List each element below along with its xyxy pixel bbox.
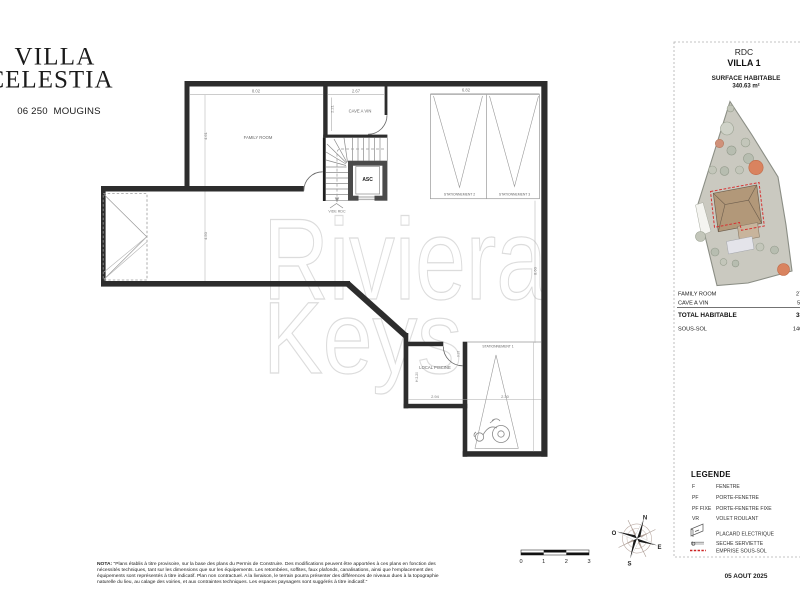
svg-text:H 2.20: H 2.20: [415, 372, 419, 382]
svg-text:FENETRE: FENETRE: [716, 484, 740, 490]
svg-text:RDC: RDC: [735, 47, 753, 57]
svg-text:S: S: [627, 562, 631, 568]
svg-text:VOLET ROULANT: VOLET ROULANT: [716, 516, 758, 522]
svg-text:06 250 MOUGINS: 06 250 MOUGINS: [17, 106, 101, 117]
svg-text:FAMILY ROOM: FAMILY ROOM: [244, 135, 273, 140]
svg-text:8.02: 8.02: [252, 89, 261, 94]
svg-text:nécessités techniques, tant su: nécessités techniques, tant sur les dime…: [97, 567, 433, 573]
svg-text:SURFACE HABITABLE: SURFACE HABITABLE: [712, 75, 781, 82]
svg-text:N: N: [643, 516, 647, 522]
svg-text:2.30: 2.30: [501, 394, 510, 399]
svg-text:E: E: [657, 545, 661, 551]
svg-text:STATIONNEMENT 2: STATIONNEMENT 2: [444, 192, 475, 196]
svg-text:PF: PF: [692, 495, 699, 501]
svg-text:EMPRISE SOUS-SOL: EMPRISE SOUS-SOL: [716, 549, 767, 555]
svg-text:05 AOUT 2025: 05 AOUT 2025: [725, 573, 768, 580]
svg-text:STATIONNEMENT 3: STATIONNEMENT 3: [499, 192, 530, 196]
svg-text:2.94: 2.94: [431, 394, 440, 399]
svg-text:PORTE-FENETRE FIXE: PORTE-FENETRE FIXE: [716, 506, 772, 512]
svg-text:33.66: 33.66: [796, 312, 800, 319]
svg-text:LEGENDE: LEGENDE: [691, 470, 731, 479]
svg-text:CAVE A VIN: CAVE A VIN: [349, 109, 372, 114]
svg-text:SOUS-SOL: SOUS-SOL: [678, 327, 707, 333]
svg-text:2.67: 2.67: [352, 89, 361, 94]
svg-text:PF FIXE: PF FIXE: [692, 506, 712, 512]
svg-text:SECHE SERVIETTE: SECHE SERVIETTE: [716, 541, 764, 547]
svg-text:340.63 m²: 340.63 m²: [732, 83, 759, 90]
svg-text:0.93: 0.93: [457, 351, 461, 357]
svg-text:PLACARD ELECTRIQUE: PLACARD ELECTRIQUE: [716, 532, 775, 538]
svg-text:2: 2: [565, 559, 568, 565]
svg-text:naturelle du lieu, au calage d: naturelle du lieu, au calage des voiries…: [97, 579, 368, 585]
svg-text:3: 3: [587, 559, 590, 565]
svg-text:STATIONNEMENT 1: STATIONNEMENT 1: [482, 345, 513, 349]
svg-text:27.76: 27.76: [796, 292, 800, 298]
svg-text:LOCAL PISCINE: LOCAL PISCINE: [419, 365, 451, 370]
svg-text:0: 0: [519, 559, 522, 565]
svg-text:TOTAL HABITABLE: TOTAL HABITABLE: [678, 312, 738, 319]
svg-text:PORTE-FENETRE: PORTE-FENETRE: [716, 495, 760, 501]
svg-text:VIDE RDC: VIDE RDC: [328, 210, 346, 214]
svg-text:CELESTIA: CELESTIA: [0, 67, 114, 94]
svg-text:2.21: 2.21: [329, 104, 334, 113]
svg-text:1: 1: [542, 559, 545, 565]
svg-text:8.60: 8.60: [533, 266, 538, 275]
svg-text:VILLA 1: VILLA 1: [727, 58, 760, 68]
svg-text:équipements sont représentés à: équipements sont représentés à titre ind…: [97, 573, 439, 579]
svg-text:CAVE A VIN: CAVE A VIN: [678, 301, 708, 307]
svg-text:FAMILY ROOM: FAMILY ROOM: [678, 292, 717, 298]
svg-text:6.82: 6.82: [462, 88, 471, 93]
svg-text:ASC: ASC: [362, 177, 373, 183]
svg-text:4.50: 4.50: [203, 231, 208, 240]
svg-text:F: F: [692, 484, 695, 490]
svg-text:4.61: 4.61: [203, 131, 208, 140]
svg-text:VR: VR: [692, 516, 699, 522]
svg-text:O: O: [612, 531, 617, 537]
svg-text:NOTA: "Plans établis à titre p: NOTA: "Plans établis à titre provisoire,…: [97, 561, 436, 567]
svg-text:146.97: 146.97: [793, 327, 800, 333]
